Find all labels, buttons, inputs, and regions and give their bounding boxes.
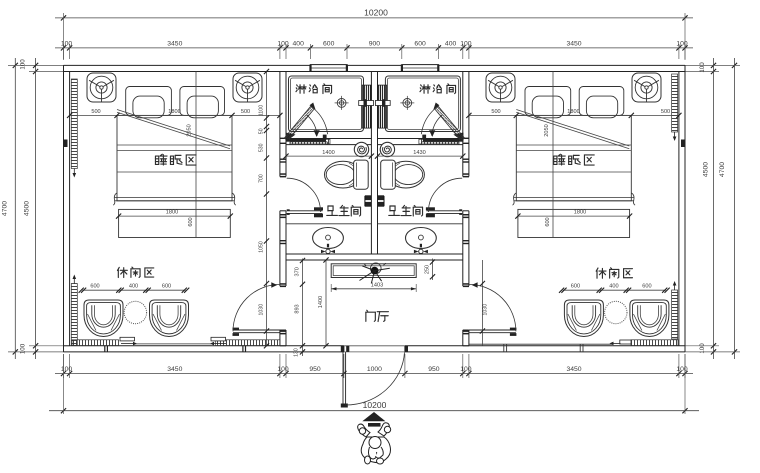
svg-text:100: 100: [676, 40, 688, 47]
svg-text:370: 370: [295, 267, 301, 276]
svg-text:1403: 1403: [371, 282, 383, 288]
svg-text:2050: 2050: [544, 124, 550, 136]
svg-text:100: 100: [460, 366, 472, 373]
svg-text:600: 600: [642, 284, 651, 290]
svg-text:1400: 1400: [322, 150, 334, 156]
svg-text:530: 530: [259, 143, 265, 152]
svg-text:500: 500: [661, 109, 670, 115]
svg-text:2050: 2050: [187, 124, 193, 136]
svg-text:950: 950: [309, 366, 321, 373]
svg-text:1030: 1030: [259, 304, 265, 316]
svg-text:600: 600: [545, 217, 551, 226]
svg-text:100: 100: [676, 366, 688, 373]
svg-text:1800: 1800: [567, 109, 579, 115]
svg-text:3450: 3450: [167, 366, 182, 373]
svg-text:4500: 4500: [703, 162, 710, 177]
svg-text:100: 100: [277, 366, 289, 373]
svg-text:1400: 1400: [318, 296, 324, 308]
svg-text:50: 50: [259, 128, 265, 134]
svg-text:1800: 1800: [166, 210, 178, 216]
svg-text:900: 900: [369, 40, 381, 47]
svg-text:1050: 1050: [259, 241, 265, 253]
svg-text:500: 500: [491, 109, 500, 115]
svg-text:3450: 3450: [167, 40, 182, 47]
svg-text:950: 950: [428, 366, 440, 373]
svg-text:10200: 10200: [364, 8, 388, 18]
svg-text:400: 400: [293, 40, 305, 47]
svg-text:1430: 1430: [413, 150, 425, 156]
svg-text:700: 700: [259, 174, 265, 183]
svg-text:1100: 1100: [259, 105, 265, 116]
svg-text:500: 500: [91, 109, 100, 115]
svg-text:893: 893: [295, 304, 301, 313]
svg-text:400: 400: [445, 40, 457, 47]
svg-text:100: 100: [460, 40, 472, 47]
svg-text:4700: 4700: [2, 201, 9, 216]
svg-text:4500: 4500: [24, 201, 31, 216]
svg-text:100: 100: [61, 40, 73, 47]
svg-text:130: 130: [294, 348, 300, 357]
svg-text:4700: 4700: [719, 162, 726, 177]
svg-text:600: 600: [188, 217, 194, 226]
svg-text:250: 250: [424, 265, 430, 274]
svg-text:600: 600: [90, 284, 99, 290]
svg-text:100: 100: [277, 40, 289, 47]
svg-text:1000: 1000: [367, 366, 382, 373]
svg-text:1800: 1800: [168, 109, 180, 115]
svg-text:100: 100: [20, 59, 27, 70]
svg-text:600: 600: [162, 284, 171, 290]
svg-text:3450: 3450: [566, 40, 581, 47]
svg-text:400: 400: [129, 284, 138, 290]
svg-text:600: 600: [414, 40, 426, 47]
svg-text:100: 100: [699, 62, 706, 73]
svg-text:100: 100: [20, 343, 27, 354]
svg-text:1800: 1800: [574, 210, 586, 216]
svg-text:600: 600: [571, 284, 580, 290]
svg-text:600: 600: [323, 40, 335, 47]
svg-text:3450: 3450: [566, 366, 581, 373]
svg-text:1030: 1030: [483, 304, 489, 316]
svg-text:400: 400: [609, 284, 618, 290]
svg-text:500: 500: [241, 109, 250, 115]
svg-text:100: 100: [61, 366, 73, 373]
